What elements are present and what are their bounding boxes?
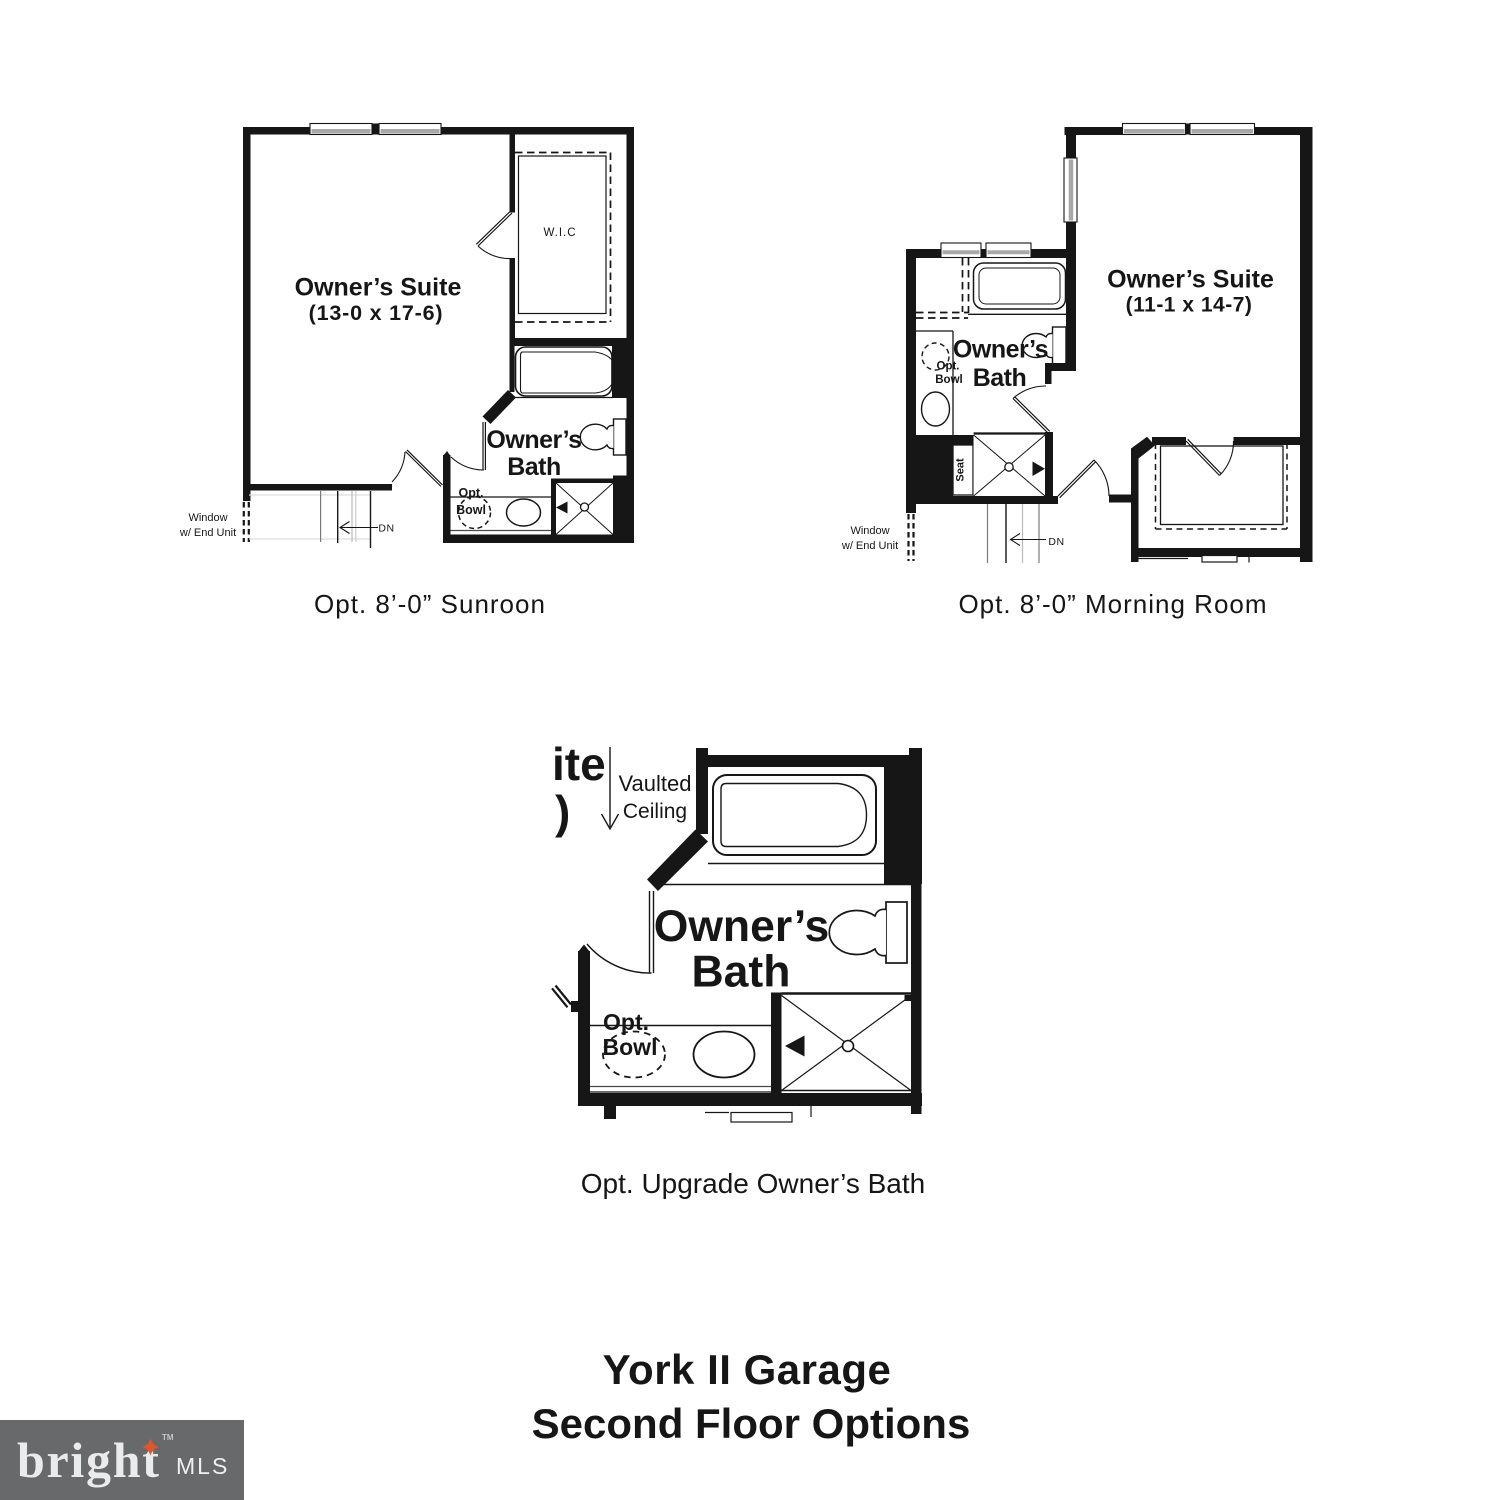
svg-text:Bath: Bath — [507, 453, 561, 481]
svg-text:Opt.: Opt. — [603, 1009, 649, 1035]
svg-text:Bath: Bath — [692, 948, 791, 997]
svg-text:DN: DN — [1048, 536, 1064, 548]
svg-text:): ) — [555, 786, 570, 838]
svg-text:MLS: MLS — [176, 1453, 229, 1479]
svg-text:Bowl: Bowl — [935, 374, 962, 386]
svg-text:Bowl: Bowl — [603, 1034, 658, 1060]
svg-text:(11-1 x 14-7): (11-1 x 14-7) — [1126, 294, 1253, 317]
svg-text:Bath: Bath — [973, 364, 1027, 392]
svg-text:Vaulted: Vaulted — [619, 771, 692, 796]
svg-text:Window: Window — [188, 512, 227, 524]
svg-text:Opt. 8’-0” Morning Room: Opt. 8’-0” Morning Room — [958, 589, 1267, 619]
svg-text:Bowl: Bowl — [456, 503, 486, 517]
svg-text:Owner’s: Owner’s — [486, 426, 581, 454]
svg-text:Ceiling: Ceiling — [623, 800, 687, 823]
svg-text:Opt.: Opt. — [459, 486, 484, 500]
svg-text:York II Garage: York II Garage — [603, 1346, 892, 1393]
svg-text:Opt. 8’-0” Sunroon: Opt. 8’-0” Sunroon — [314, 589, 546, 619]
svg-text:bright: bright — [17, 1432, 161, 1488]
svg-text:w/ End Unit: w/ End Unit — [841, 540, 898, 552]
svg-text:(13-0 x 17-6): (13-0 x 17-6) — [309, 301, 444, 325]
svg-text:Owner’s: Owner’s — [953, 336, 1048, 364]
svg-text:Owner’s Suite: Owner’s Suite — [1107, 266, 1274, 294]
svg-text:DN: DN — [378, 523, 394, 535]
svg-text:Second Floor Options: Second Floor Options — [532, 1400, 971, 1447]
svg-text:Window: Window — [850, 525, 889, 537]
svg-text:Owner’s Suite: Owner’s Suite — [295, 274, 462, 302]
svg-text:ite: ite — [552, 738, 606, 790]
svg-text:Seat: Seat — [955, 458, 967, 482]
svg-text:TM: TM — [162, 1433, 174, 1442]
svg-text:Opt. Upgrade Owner’s Bath: Opt. Upgrade Owner’s Bath — [581, 1168, 925, 1199]
svg-text:W.I.C: W.I.C — [543, 227, 576, 239]
svg-text:Owner’s: Owner’s — [654, 902, 830, 951]
svg-text:w/ End Unit: w/ End Unit — [179, 527, 236, 539]
